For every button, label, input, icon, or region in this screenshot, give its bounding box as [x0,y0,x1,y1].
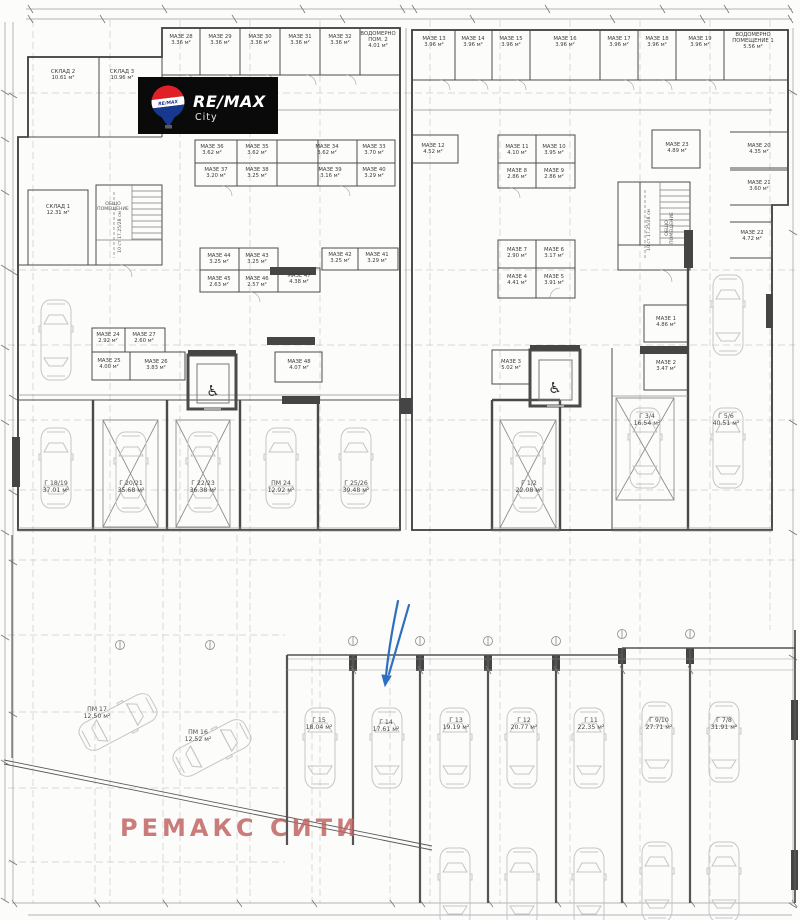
elevator-right: ♿ [530,350,580,406]
garage-label: Г 9/1027.71 м² [646,717,673,731]
room-label: МАЗЕ 383.25 м² [245,167,269,179]
room-label: МАЗЕ 393.16 м² [318,167,341,179]
garage-label: Г 1417.61 м² [373,719,400,733]
room-label: МАЗЕ 254.00 м² [97,358,120,370]
room-label: МАЗЕ 193.96 м² [688,36,711,48]
garage-label: Г 3/416.54 м² [634,413,661,427]
room-label: МАЗЕ 35.02 м² [501,359,521,371]
garage-label: Г 1220.77 м² [511,717,538,731]
wheelchair-icon: ♿ [548,379,561,397]
room-label: МАЗЕ 373.20 м² [204,167,227,179]
garage-labels: Г 18/1937.01 м²Г 20/2135.68 м²Г 22/2336.… [43,413,740,743]
note-labels: ОБЩОПОМЕЩЕНИЕ10 ст 17.25/28 смОБЩОПОМЕЩЕ… [97,201,675,253]
room-label: МАЗЕ 103.95 м² [542,144,566,156]
basement-floor-plan: ♿ ♿ [0,0,800,920]
room-label: МАЗЕ 163.96 м² [553,36,577,48]
room-label: МАЗЕ 413.29 м² [365,252,388,264]
wheelchair-icon: ♿ [206,382,219,400]
room-label: МАЗЕ 343.62 м² [315,144,339,156]
room-label: МАЗЕ 124.52 м² [421,143,444,155]
remax-logo: RE/MAX RE/MAX City [138,77,278,134]
room-label: МАЗЕ 224.72 м² [740,230,763,242]
room-label: МАЗЕ 63.17 м² [544,247,565,259]
room-label: МАЗЕ 283.36 м² [169,34,193,46]
room-label: МАЗЕ 92.86 м² [544,168,564,180]
room-label: МАЗЕ 44.41 м² [507,274,528,286]
garage-label: Г 1122.35 м² [578,717,605,731]
room-label: СКЛАД 310.96 м² [110,69,134,81]
room-label: МАЗЕ 353.62 м² [245,144,268,156]
room-label: МАЗЕ 452.63 м² [207,276,230,288]
room-label: МАЗЕ 143.96 м² [461,36,485,48]
room-label: МАЗЕ 82.86 м² [507,168,528,180]
stair-note-label: ОБЩОПОМЕЩЕНИЕ [664,212,675,244]
room-label: МАЗЕ 272.60 м² [132,332,155,344]
room-label: МАЗЕ 204.35 м² [747,143,771,155]
room-label: МАЗЕ 183.96 м² [645,36,669,48]
room-label: МАЗЕ 293.36 м² [208,34,231,46]
stair-note-label: ОБЩОПОМЕЩЕНИЕ [97,201,129,212]
garage-label: Г 5/640.51 м² [713,413,740,427]
garage-label: ПМ 2412.92 м² [268,480,295,494]
room-label: СКЛАД 210.61 м² [51,69,75,81]
garage-door-panels [103,398,674,528]
room-label: МАЗЕ 484.07 м² [287,359,311,371]
room-label: МАЗЕ 313.36 м² [288,34,311,46]
room-label: МАЗЕ 443.25 м² [207,253,231,265]
room-label: МАЗЕ 462.57 м² [245,276,269,288]
elevator-left: ♿ [188,355,236,409]
room-label: МАЗЕ 363.62 м² [200,144,224,156]
logo-subtext: City [195,112,218,123]
grid-bubbles [116,630,695,650]
lower-garage-row-walls [287,630,795,903]
room-label: СКЛАД 112.31 м² [46,204,70,216]
garage-label: ПМ 1712.50 м² [84,706,111,720]
room-label: МАЗЕ 474.38 м² [287,273,310,285]
hand-drawn-arrow [382,601,409,686]
room-label: МАЗЕ 14.86 м² [656,316,676,328]
room-label: МАЗЕ 303.36 м² [248,34,272,46]
garage-label: Г 25/2639.48 м² [343,480,370,494]
room-label: МАЗЕ 213.60 м² [747,180,770,192]
room-label: МАЗЕ 403.29 м² [362,167,386,179]
room-label: МАЗЕ 173.96 м² [607,36,630,48]
logo-text: RE/MAX [193,92,266,111]
garage-label: Г 1319.19 м² [443,717,470,731]
room-label: МАЗЕ 153.96 м² [499,36,522,48]
stair-note-label: 10 ст 17.25/28 см [117,210,123,252]
room-label: МАЗЕ 323.36 м² [328,34,351,46]
garage-label: Г 1518.04 м² [306,717,333,731]
floor-plan-page: ♿ ♿ [0,0,800,920]
room-label: МАЗЕ 333.70 м² [362,144,385,156]
garage-label: Г 20/2135.68 м² [118,480,145,494]
watermark-text: РЕМАКС СИТИ [120,814,360,842]
room-label: МАЗЕ 114.10 м² [505,144,528,156]
room-label: МАЗЕ 423.25 м² [328,252,351,264]
stair-note-label: 10 ст 17.25/28 см [646,208,652,250]
yard-boundary [4,535,432,850]
room-label: МАЗЕ 263.83 м² [144,359,168,371]
room-label: ВОДОМЕРНОПОМ. 24.01 м² [360,31,395,49]
stairs-left [96,185,162,258]
room-label: МАЗЕ 242.92 м² [96,332,120,344]
garage-label: Г 18/1937.01 м² [43,480,70,494]
garage-label: Г 22/2336.38 м² [190,480,217,494]
garage-label: Г 1/222.08 м² [516,480,543,494]
room-label: МАЗЕ 133.96 м² [422,36,445,48]
room-label: МАЗЕ 234.89 м² [665,142,688,154]
room-label: МАЗЕ 23.47 м² [656,360,676,372]
garage-label: ПМ 1612.52 м² [185,729,212,743]
room-label: МАЗЕ 433.25 м² [245,253,268,265]
room-label: ВОДОМЕРНОПОМЕЩЕНИЕ 15.56 м² [732,32,774,50]
room-label: МАЗЕ 53.91 м² [544,274,564,286]
garage-label: Г 7/831.91 м² [711,717,738,731]
room-label: МАЗЕ 72.90 м² [507,247,527,259]
